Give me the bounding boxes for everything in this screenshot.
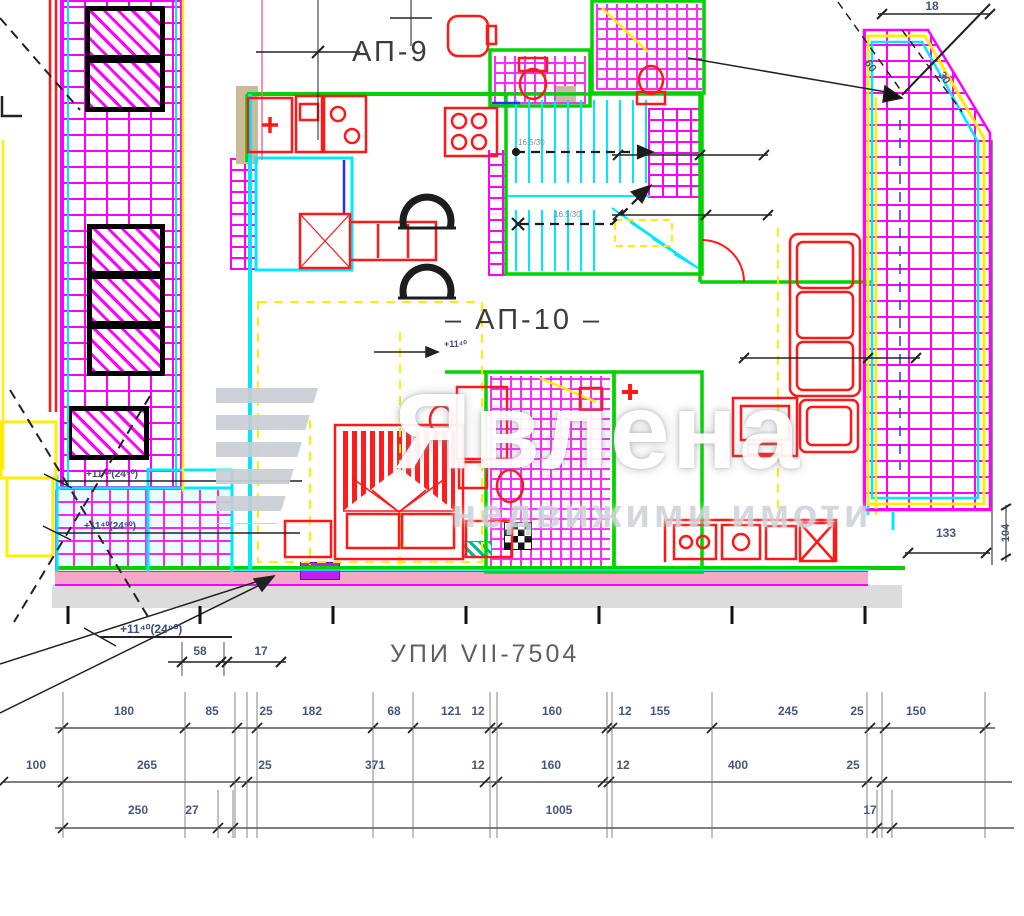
level-mark-text: +11⁴⁰(24⁹⁰) — [120, 622, 182, 636]
dim-value: 155 — [650, 704, 670, 718]
dim-value: 25 — [850, 704, 863, 718]
dim-value: 100 — [26, 758, 46, 772]
dimension-row-3 — [55, 823, 1014, 833]
dim-value: 400 — [728, 758, 748, 772]
watermark-tagline: недвижими имоти — [452, 492, 873, 537]
dim-value: 85 — [205, 704, 218, 718]
dim-value: 371 — [365, 758, 385, 772]
dim-value: 160 — [542, 704, 562, 718]
dim-value: 18 — [925, 0, 938, 13]
dim-value: 1005 — [546, 803, 573, 817]
level-mark-text: +11⁴⁰(24⁹⁰) — [86, 469, 138, 480]
dim-value: 12 — [471, 704, 484, 718]
site-label: УПИ VII-7504 — [390, 640, 579, 669]
dim-value: 58 — [193, 644, 206, 658]
dim-value: 121 — [441, 704, 461, 718]
level-mark-text: +11⁴⁰(24⁹⁰) — [84, 521, 136, 532]
dim-value: 182 — [302, 704, 322, 718]
dim-value: 27 — [185, 803, 198, 817]
dim-value: 180 — [114, 704, 134, 718]
dim-value: 25 — [258, 758, 271, 772]
dim-value: 25 — [846, 758, 859, 772]
dim-value: 265 — [137, 758, 157, 772]
apartment-label-ap10: – АП-10 – — [445, 304, 602, 337]
door-swing-symbols — [398, 197, 456, 298]
apartment-label-ap9: АП-9 — [352, 36, 430, 69]
dimension-row-1 — [55, 723, 995, 733]
door-swing — [702, 240, 744, 282]
dim-value: 17 — [863, 803, 876, 817]
dimension-row-2 — [0, 777, 1012, 787]
level-mark-text: +11⁴⁰ — [444, 339, 467, 350]
dim-value: 12 — [618, 704, 631, 718]
dim-value: 12 — [616, 758, 629, 772]
dim-value: 133 — [936, 526, 956, 540]
watermark-brand: Явлена — [394, 368, 801, 493]
dim-value: 150 — [906, 704, 926, 718]
dim-value: 245 — [778, 704, 798, 718]
dim-value: 160 — [541, 758, 561, 772]
dim-value: 25 — [259, 704, 272, 718]
floor-plan-canvas: АП-9 – АП-10 – УПИ VII-7504 180 85 25 18… — [0, 0, 1024, 916]
dim-value: 68 — [387, 704, 400, 718]
dim-value: 17 — [254, 644, 267, 658]
stair-note: 16.5/30 — [518, 138, 545, 147]
dim-value-rotated: 104 — [1000, 524, 1012, 542]
stair-note: 16.5/30 — [554, 210, 581, 219]
elevator-cab — [300, 214, 350, 268]
dim-value: 250 — [128, 803, 148, 817]
dim-value: 12 — [471, 758, 484, 772]
